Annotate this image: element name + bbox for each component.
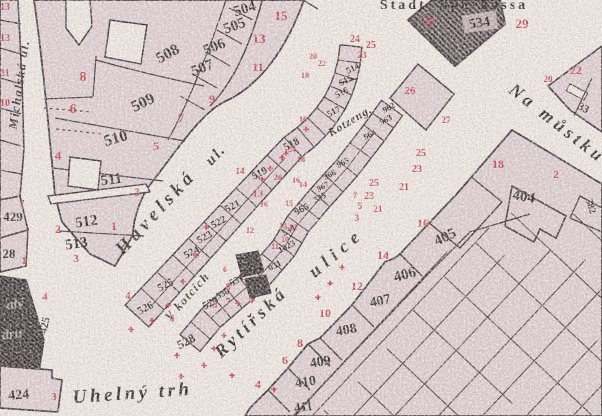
svg-text:7: 7 <box>226 297 231 308</box>
svg-text:23: 23 <box>358 50 368 60</box>
svg-text:5: 5 <box>358 201 363 211</box>
svg-text:✚: ✚ <box>249 297 255 305</box>
svg-text:6: 6 <box>282 353 288 367</box>
svg-text:24: 24 <box>350 34 360 45</box>
svg-text:✚: ✚ <box>279 154 285 162</box>
svg-text:22: 22 <box>318 59 326 68</box>
svg-text:21: 21 <box>399 182 409 193</box>
svg-text:✚: ✚ <box>259 176 265 184</box>
svg-text:✚: ✚ <box>203 224 209 232</box>
svg-text:12: 12 <box>289 223 297 232</box>
svg-text:✚: ✚ <box>201 362 207 370</box>
svg-text:28: 28 <box>3 246 17 261</box>
svg-text:16: 16 <box>260 200 268 209</box>
svg-text:✚: ✚ <box>178 373 184 381</box>
svg-text:8: 8 <box>226 282 231 293</box>
svg-text:✚: ✚ <box>221 332 227 340</box>
svg-text:✚: ✚ <box>180 278 186 286</box>
svg-text:✚: ✚ <box>235 300 241 308</box>
svg-text:4: 4 <box>42 291 48 303</box>
svg-text:4: 4 <box>255 377 261 391</box>
svg-text:✚: ✚ <box>303 126 309 134</box>
svg-text:16: 16 <box>417 216 429 230</box>
svg-text:Stadt Sparkassa: Stadt Sparkassa <box>380 0 528 13</box>
svg-text:13: 13 <box>0 2 10 13</box>
svg-text:3: 3 <box>355 213 360 223</box>
svg-text:18: 18 <box>297 155 305 164</box>
svg-text:8: 8 <box>80 70 87 85</box>
svg-text:20: 20 <box>274 173 282 182</box>
svg-text:✚: ✚ <box>327 280 333 288</box>
svg-text:12: 12 <box>246 226 254 235</box>
svg-text:25: 25 <box>416 148 426 159</box>
svg-text:11: 11 <box>0 68 9 79</box>
svg-text:15: 15 <box>275 8 289 23</box>
svg-text:✚: ✚ <box>174 352 180 360</box>
svg-text:9: 9 <box>209 92 215 106</box>
svg-text:✚: ✚ <box>165 302 171 310</box>
svg-text:7: 7 <box>178 111 184 125</box>
svg-text:3: 3 <box>134 185 140 199</box>
svg-text:13: 13 <box>253 188 265 200</box>
svg-text:20: 20 <box>544 74 554 84</box>
svg-text:29: 29 <box>516 16 530 31</box>
svg-text:25: 25 <box>369 178 379 189</box>
svg-text:10: 10 <box>319 306 331 320</box>
svg-text:27: 27 <box>442 115 452 125</box>
svg-text:23: 23 <box>412 164 422 175</box>
svg-text:✚: ✚ <box>149 317 155 325</box>
svg-text:3: 3 <box>73 253 79 265</box>
svg-text:25: 25 <box>366 40 376 51</box>
svg-text:411: 411 <box>293 398 314 415</box>
svg-text:13: 13 <box>253 31 267 46</box>
svg-text:4: 4 <box>170 314 175 325</box>
svg-text:513: 513 <box>64 235 89 254</box>
svg-text:23: 23 <box>364 191 374 202</box>
svg-text:6: 6 <box>70 102 77 117</box>
svg-text:16: 16 <box>299 115 307 124</box>
svg-text:7: 7 <box>20 199 25 210</box>
svg-text:3: 3 <box>51 391 57 403</box>
svg-text:dru: dru <box>1 326 23 344</box>
svg-text:✚: ✚ <box>193 252 199 260</box>
svg-text:1: 1 <box>111 219 117 233</box>
svg-text:13: 13 <box>279 221 287 230</box>
svg-text:4: 4 <box>55 148 62 163</box>
svg-text:512: 512 <box>74 213 99 232</box>
svg-text:26: 26 <box>405 85 417 97</box>
svg-text:511: 511 <box>100 171 124 190</box>
svg-text:✚: ✚ <box>271 386 277 394</box>
svg-text:2: 2 <box>55 222 61 236</box>
svg-text:✚: ✚ <box>315 294 321 302</box>
svg-text:410: 410 <box>294 374 317 392</box>
svg-text:5: 5 <box>153 139 159 153</box>
svg-text:14: 14 <box>377 248 389 262</box>
svg-text:30: 30 <box>423 14 435 28</box>
svg-text:✚: ✚ <box>211 345 217 353</box>
svg-text:22: 22 <box>570 63 582 77</box>
svg-text:5: 5 <box>213 300 218 311</box>
svg-text:20: 20 <box>309 52 317 61</box>
svg-text:alv: alv <box>6 296 26 313</box>
svg-text:21: 21 <box>374 204 384 214</box>
svg-text:24: 24 <box>288 145 296 154</box>
svg-text:2: 2 <box>553 169 559 181</box>
svg-text:11: 11 <box>252 60 263 74</box>
svg-text:1: 1 <box>22 256 27 267</box>
svg-text:4: 4 <box>126 291 131 302</box>
svg-text:424: 424 <box>8 387 30 403</box>
svg-text:10: 10 <box>0 98 10 109</box>
svg-text:7: 7 <box>353 191 357 200</box>
svg-text:8: 8 <box>297 336 303 350</box>
svg-text:18: 18 <box>492 157 504 171</box>
svg-text:18: 18 <box>301 71 309 80</box>
svg-text:✚: ✚ <box>229 372 235 380</box>
svg-text:12: 12 <box>351 279 363 293</box>
svg-text:13: 13 <box>0 33 10 44</box>
svg-text:11: 11 <box>271 242 279 251</box>
svg-text:14: 14 <box>236 166 246 176</box>
svg-text:✚: ✚ <box>128 326 134 334</box>
svg-text:6: 6 <box>223 265 227 274</box>
svg-text:✚: ✚ <box>339 264 345 272</box>
svg-text:429: 429 <box>3 209 23 224</box>
svg-text:✚: ✚ <box>267 165 273 173</box>
svg-text:15: 15 <box>285 199 293 208</box>
svg-text:14: 14 <box>299 180 307 189</box>
svg-text:10: 10 <box>281 235 289 244</box>
svg-text:534: 534 <box>468 15 491 33</box>
